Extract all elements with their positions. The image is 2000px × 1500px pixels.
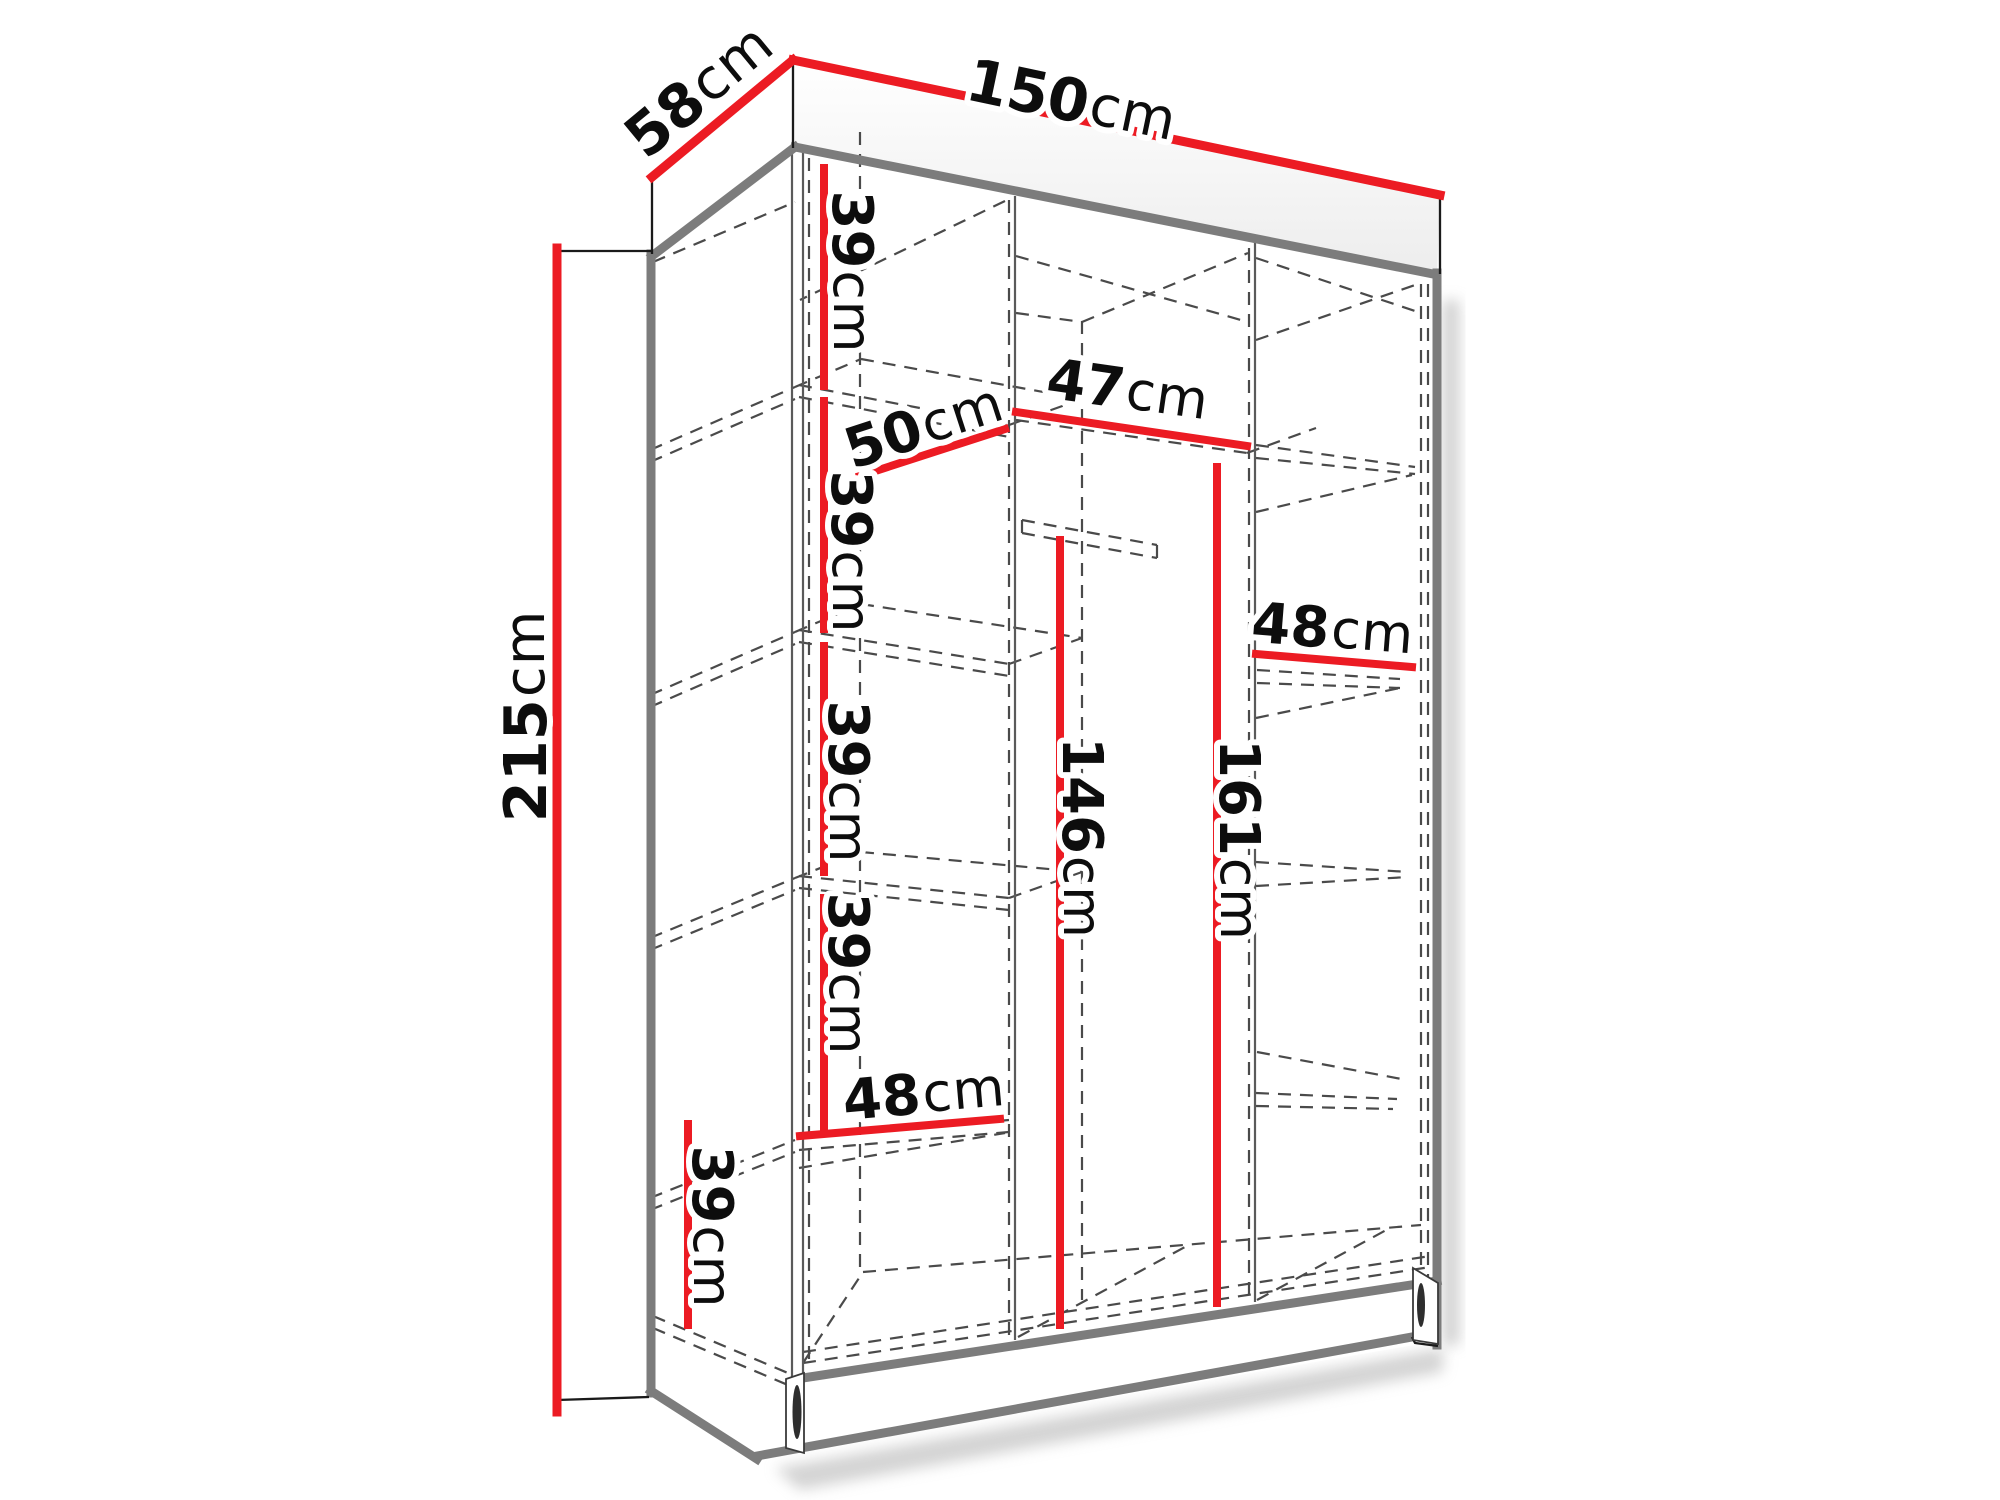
label-left-shelf-2: 39cm [819,471,884,634]
right-column-shelf-1 [1256,445,1415,512]
front-left-foot [786,1373,804,1453]
hidden-edges [653,132,1428,1360]
label-middle-hanging-height: 146cm [1050,737,1115,939]
label-overall-height: 215cm [491,610,560,823]
label-left-shelf-5: 39cm [680,1146,745,1309]
right-column-shelf-2 [1256,670,1400,718]
label-left-shelf-3: 39cm [816,701,881,864]
right-column-shelf-3 [1256,862,1408,886]
wardrobe-dimension-diagram: 150cm 58cm 215cm 39cm 39cm 39cm 39cm 39c… [0,0,2000,1500]
label-right-hanging-height: 161cm [1207,739,1272,941]
label-left-shelf-1: 39cm [820,191,885,354]
carcass-edges [651,147,1437,1459]
label-left-shelf-4: 39cm [816,893,881,1056]
label-right-width: 48cm [1249,590,1417,668]
label-interior-depth: 50cm [836,370,1011,482]
right-column-shelf-4 [1256,1052,1407,1109]
hanging-rail [1022,520,1157,558]
